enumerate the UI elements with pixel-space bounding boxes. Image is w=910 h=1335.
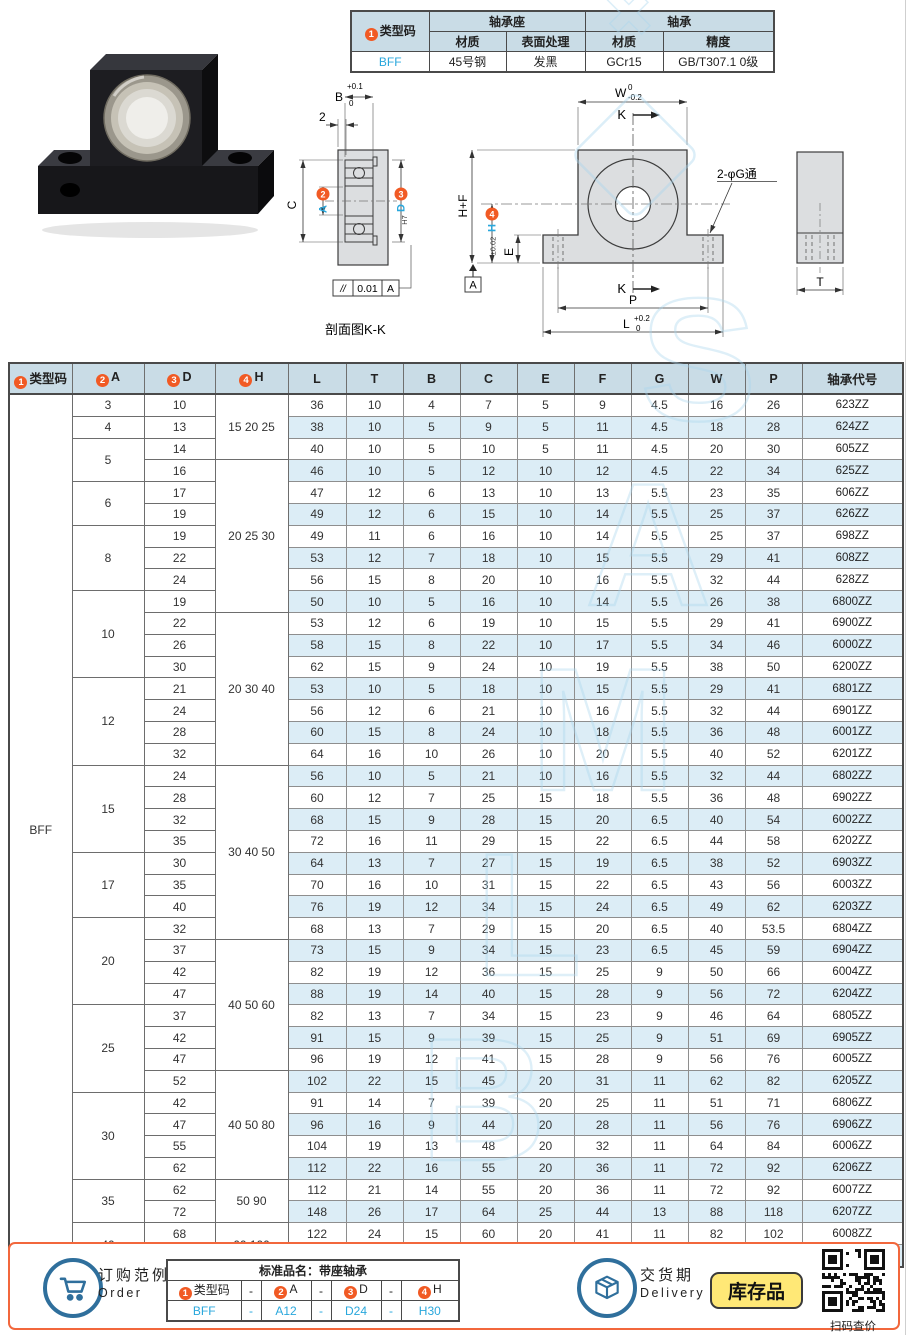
bearing-code-cell: 6005ZZ <box>802 1048 903 1070</box>
value-cell: 5.5 <box>631 743 688 765</box>
value-cell: 5 <box>403 765 460 787</box>
value-cell: 10 <box>517 634 574 656</box>
main-table-header-row: 1类型码2A3D4HLTBCEFGWP轴承代号 <box>9 363 903 394</box>
value-cell: 25 <box>574 961 631 983</box>
d-cell: 35 <box>144 830 215 852</box>
dim-w-tol-up: 0 <box>628 83 633 92</box>
value-cell: 12 <box>403 961 460 983</box>
bearing-code-cell: 608ZZ <box>802 547 903 569</box>
dim-w-label: W <box>615 86 627 100</box>
value-cell: 11 <box>574 416 631 438</box>
value-cell: 26 <box>460 743 517 765</box>
value-cell: 8 <box>403 634 460 656</box>
column-header: G <box>631 363 688 394</box>
value-cell: 62 <box>745 896 802 918</box>
bearing-code-cell: 606ZZ <box>802 482 903 504</box>
value-cell: 10 <box>517 700 574 722</box>
value-cell: 51 <box>688 1027 745 1049</box>
table-row: 24561582010165.53244628ZZ <box>9 569 903 591</box>
value-cell: 10 <box>517 591 574 613</box>
column-header: 3D <box>144 363 215 394</box>
column-header: 2A <box>72 363 144 394</box>
value-cell: 29 <box>688 547 745 569</box>
value-cell: 19 <box>460 612 517 634</box>
column-header: F <box>574 363 631 394</box>
value-cell: 32 <box>688 569 745 591</box>
value-cell: 43 <box>688 874 745 896</box>
dim-c-label: C <box>285 200 299 209</box>
badge-icon: 3 <box>167 374 180 387</box>
value-cell: 15 <box>346 656 403 678</box>
d-cell: 22 <box>144 612 215 634</box>
value-cell: 72 <box>688 1157 745 1179</box>
table-row: BFF31015 20 25361047594.51626623ZZ <box>9 394 903 416</box>
value-cell: 76 <box>288 896 346 918</box>
value-cell: 41 <box>460 1048 517 1070</box>
value-cell: 49 <box>688 896 745 918</box>
value-cell: 14 <box>574 503 631 525</box>
d-cell: 42 <box>144 961 215 983</box>
d-cell: 47 <box>144 1048 215 1070</box>
order-label-cn: 订购范例 <box>98 1267 170 1285</box>
value-cell: 28 <box>574 983 631 1005</box>
value-cell: 29 <box>688 678 745 700</box>
value-cell: 96 <box>288 1048 346 1070</box>
value-cell: 49 <box>288 503 346 525</box>
qr-code-icon <box>822 1249 885 1312</box>
spec-material-value: 45号钢 <box>429 52 506 73</box>
value-cell: 53.5 <box>745 918 802 940</box>
value-cell: 64 <box>745 1005 802 1027</box>
value-cell: 16 <box>574 569 631 591</box>
table-row: 28601582410185.536486001ZZ <box>9 721 903 743</box>
value-cell: 15 <box>346 569 403 591</box>
value-cell: 19 <box>574 656 631 678</box>
value-cell: 60 <box>288 787 346 809</box>
column-header: 1类型码 <box>9 363 72 394</box>
table-row: 32681592815206.540546002ZZ <box>9 809 903 831</box>
badge-2-icon: 2 <box>274 1286 287 1299</box>
value-cell: 13 <box>403 1136 460 1158</box>
d-cell: 35 <box>144 874 215 896</box>
bearing-code-cell: 6204ZZ <box>802 983 903 1005</box>
value-cell: 18 <box>460 678 517 700</box>
value-cell: 92 <box>745 1179 802 1201</box>
value-cell: 36 <box>574 1157 631 1179</box>
bearing-code-cell: 6805ZZ <box>802 1005 903 1027</box>
spec-subheader-precision: 精度 <box>663 32 774 52</box>
value-cell: 112 <box>288 1157 346 1179</box>
spec-subheader-surface: 表面处理 <box>506 32 585 52</box>
bearing-code-cell: 6802ZZ <box>802 765 903 787</box>
table-row: 152430 40 50561052110165.532446802ZZ <box>9 765 903 787</box>
value-cell: 10 <box>517 503 574 525</box>
value-cell: 15 <box>517 1005 574 1027</box>
dim-d-fit-label: H7 <box>400 215 409 225</box>
value-cell: 13 <box>346 1005 403 1027</box>
value-cell: 41 <box>745 547 802 569</box>
value-cell: 29 <box>460 830 517 852</box>
value-cell: 18 <box>574 787 631 809</box>
value-cell: 56 <box>745 874 802 896</box>
value-cell: 13 <box>574 482 631 504</box>
value-cell: 44 <box>574 1201 631 1223</box>
value-cell: 10 <box>403 874 460 896</box>
value-cell: 5.5 <box>631 569 688 591</box>
value-cell: 76 <box>745 1114 802 1136</box>
value-cell: 6 <box>403 612 460 634</box>
table-row: 617471261310135.52335606ZZ <box>9 482 903 504</box>
value-cell: 56 <box>288 569 346 591</box>
value-cell: 12 <box>574 460 631 482</box>
spec-table: 1类型码 轴承座 轴承 材质 表面处理 材质 精度 BFF 45号钢 发黑 GC… <box>350 10 775 73</box>
value-cell: 36 <box>460 961 517 983</box>
value-cell: 104 <box>288 1136 346 1158</box>
value-cell: 22 <box>574 874 631 896</box>
value-cell: 15 <box>346 809 403 831</box>
catalog-page: 1类型码 轴承座 轴承 材质 表面处理 材质 精度 BFF 45号钢 发黑 GC… <box>0 0 910 1335</box>
value-cell: 59 <box>745 939 802 961</box>
value-cell: 6.5 <box>631 939 688 961</box>
table-row: 30621592410195.538506200ZZ <box>9 656 903 678</box>
order-dash: - <box>381 1301 401 1322</box>
value-cell: 6 <box>403 482 460 504</box>
value-cell: 15 <box>460 503 517 525</box>
value-cell: 13 <box>631 1201 688 1223</box>
table-row: 2032681372915206.54053.56804ZZ <box>9 918 903 940</box>
value-cell: 24 <box>574 896 631 918</box>
bearing-code-cell: 6207ZZ <box>802 1201 903 1223</box>
value-cell: 5.5 <box>631 721 688 743</box>
value-cell: 72 <box>745 983 802 1005</box>
value-cell: 15 <box>517 787 574 809</box>
value-cell: 18 <box>688 416 745 438</box>
value-cell: 15 <box>517 961 574 983</box>
table-row: 357216112915226.544586202ZZ <box>9 830 903 852</box>
value-cell: 15 <box>517 874 574 896</box>
column-header: W <box>688 363 745 394</box>
value-cell: 10 <box>403 743 460 765</box>
value-cell: 64 <box>460 1201 517 1223</box>
dimension-table: 1类型码2A3D4HLTBCEFGWP轴承代号 BFF31015 20 2536… <box>8 362 904 1268</box>
value-cell: 48 <box>460 1136 517 1158</box>
value-cell: 40 <box>688 918 745 940</box>
value-cell: 47 <box>288 482 346 504</box>
column-header: 轴承代号 <box>802 363 903 394</box>
bearing-code-cell: 6201ZZ <box>802 743 903 765</box>
value-cell: 36 <box>288 394 346 416</box>
value-cell: 12 <box>346 482 403 504</box>
table-row: 1620 25 30461051210124.52234625ZZ <box>9 460 903 482</box>
table-row: 1019501051610145.526386800ZZ <box>9 591 903 613</box>
value-cell: 19 <box>574 852 631 874</box>
d-cell: 42 <box>144 1092 215 1114</box>
value-cell: 22 <box>346 1070 403 1092</box>
value-cell: 5 <box>403 591 460 613</box>
value-cell: 15 <box>574 547 631 569</box>
value-cell: 5 <box>517 438 574 460</box>
value-cell: 56 <box>688 1048 745 1070</box>
dim-d-label: D <box>396 204 408 212</box>
value-cell: 25 <box>688 503 745 525</box>
value-cell: 14 <box>403 1179 460 1201</box>
value-cell: 32 <box>574 1136 631 1158</box>
value-cell: 23 <box>574 1005 631 1027</box>
table-row: 357016103115226.543566003ZZ <box>9 874 903 896</box>
value-cell: 21 <box>346 1179 403 1201</box>
dim-b-tol-dn: 0 <box>349 99 354 108</box>
dim-b-tol-up: +0.1 <box>347 82 363 91</box>
value-cell: 10 <box>517 482 574 504</box>
value-cell: 12 <box>403 1048 460 1070</box>
bearing-code-cell: 624ZZ <box>802 416 903 438</box>
delivery-label-cn: 交货期 <box>640 1267 705 1285</box>
value-cell: 7 <box>403 1005 460 1027</box>
d-cell: 32 <box>144 809 215 831</box>
table-row: 5240 50 8010222154520311162826205ZZ <box>9 1070 903 1092</box>
table-row: 24561262110165.532446901ZZ <box>9 700 903 722</box>
bearing-code-cell: 6806ZZ <box>802 1092 903 1114</box>
value-cell: 15 <box>346 1027 403 1049</box>
order-label-en: Order <box>98 1285 170 1301</box>
dim-h-tol: ±0.02 <box>489 237 498 256</box>
value-cell: 26 <box>745 394 802 416</box>
page-edge-line <box>905 0 906 1335</box>
value-cell: 20 <box>460 569 517 591</box>
value-cell: 15 <box>517 1027 574 1049</box>
value-cell: 23 <box>688 482 745 504</box>
value-cell: 15 <box>517 918 574 940</box>
value-cell: 37 <box>745 503 802 525</box>
badge-icon: 4 <box>239 374 252 387</box>
value-cell: 13 <box>460 482 517 504</box>
value-cell: 82 <box>745 1070 802 1092</box>
value-cell: 41 <box>745 678 802 700</box>
bearing-code-cell: 6006ZZ <box>802 1136 903 1158</box>
spec-group-bearing: 轴承 <box>585 11 774 32</box>
value-cell: 25 <box>574 1092 631 1114</box>
value-cell: 15 <box>574 678 631 700</box>
spec-precision-value: GB/T307.1 0级 <box>663 52 774 73</box>
value-cell: 53 <box>288 612 346 634</box>
bearing-code-cell: 6000ZZ <box>802 634 903 656</box>
value-cell: 20 <box>517 1157 574 1179</box>
value-cell: 9 <box>403 656 460 678</box>
value-cell: 52 <box>745 743 802 765</box>
d-cell: 16 <box>144 460 215 482</box>
value-cell: 5.5 <box>631 612 688 634</box>
value-cell: 4 <box>403 394 460 416</box>
order-value-type: BFF <box>167 1301 241 1322</box>
spec-group-housing: 轴承座 <box>429 11 585 32</box>
value-cell: 56 <box>288 700 346 722</box>
value-cell: 40 <box>288 438 346 460</box>
value-cell: 18 <box>460 547 517 569</box>
column-header: E <box>517 363 574 394</box>
a-group-cell: 25 <box>72 1005 144 1092</box>
value-cell: 70 <box>288 874 346 896</box>
badge-4-icon: 4 <box>418 1286 431 1299</box>
value-cell: 5 <box>517 416 574 438</box>
value-cell: 10 <box>517 678 574 700</box>
value-cell: 16 <box>346 830 403 852</box>
d-cell: 19 <box>144 525 215 547</box>
a-group-cell: 12 <box>72 678 144 765</box>
order-header-a: 2A <box>261 1281 311 1301</box>
a-group-cell: 17 <box>72 852 144 917</box>
value-cell: 12 <box>460 460 517 482</box>
value-cell: 7 <box>403 918 460 940</box>
value-cell: 46 <box>288 460 346 482</box>
datum-a-label: A <box>469 280 477 292</box>
d-cell: 30 <box>144 656 215 678</box>
value-cell: 5.5 <box>631 656 688 678</box>
badge-1-icon: 1 <box>365 28 378 41</box>
table-row: 407619123415246.549626203ZZ <box>9 896 903 918</box>
flatness-ref: A <box>387 283 394 295</box>
value-cell: 34 <box>460 1005 517 1027</box>
value-cell: 9 <box>631 1048 688 1070</box>
value-cell: 14 <box>346 1092 403 1114</box>
bearing-code-cell: 6900ZZ <box>802 612 903 634</box>
spec-type-code-header: 1类型码 <box>351 11 429 52</box>
d-cell: 24 <box>144 765 215 787</box>
badge-4-number: 4 <box>489 210 494 220</box>
bearing-code-cell: 698ZZ <box>802 525 903 547</box>
value-cell: 36 <box>688 721 745 743</box>
value-cell: 25 <box>460 787 517 809</box>
value-cell: 8 <box>403 721 460 743</box>
value-cell: 76 <box>745 1048 802 1070</box>
column-header: T <box>346 363 403 394</box>
value-cell: 6.5 <box>631 809 688 831</box>
h-group-cell: 15 20 25 <box>215 394 288 460</box>
order-value-a: A12 <box>261 1301 311 1322</box>
value-cell: 13 <box>346 852 403 874</box>
table-row: 6211222165520361172926206ZZ <box>9 1157 903 1179</box>
value-cell: 19 <box>346 961 403 983</box>
d-cell: 72 <box>144 1201 215 1223</box>
value-cell: 28 <box>460 809 517 831</box>
value-cell: 15 <box>517 1048 574 1070</box>
table-row: 1221531051810155.529416801ZZ <box>9 678 903 700</box>
value-cell: 91 <box>288 1092 346 1114</box>
value-cell: 16 <box>346 743 403 765</box>
value-cell: 96 <box>288 1114 346 1136</box>
value-cell: 6.5 <box>631 918 688 940</box>
value-cell: 15 <box>346 721 403 743</box>
footer-bar: 订购范例 Order 标准品名：带座轴承 1类型码 - 2A - 3D - 4H… <box>8 1242 900 1330</box>
value-cell: 24 <box>460 721 517 743</box>
value-cell: 5.5 <box>631 700 688 722</box>
value-cell: 28 <box>574 1048 631 1070</box>
value-cell: 20 <box>517 1179 574 1201</box>
value-cell: 39 <box>460 1027 517 1049</box>
order-dash: - <box>311 1281 331 1301</box>
d-cell: 47 <box>144 1114 215 1136</box>
value-cell: 27 <box>460 852 517 874</box>
value-cell: 20 <box>517 1114 574 1136</box>
technical-drawing: B +0.1 0 2 C 2 A 3 D H7 // 0.01 <box>285 75 905 360</box>
d-cell: 47 <box>144 983 215 1005</box>
value-cell: 84 <box>745 1136 802 1158</box>
value-cell: 17 <box>403 1201 460 1223</box>
bearing-code-cell: 605ZZ <box>802 438 903 460</box>
value-cell: 5 <box>517 394 574 416</box>
value-cell: 6.5 <box>631 830 688 852</box>
d-cell: 37 <box>144 939 215 961</box>
bearing-code-cell: 625ZZ <box>802 460 903 482</box>
bearing-code-cell: 6003ZZ <box>802 874 903 896</box>
a-group-cell: 5 <box>72 438 144 482</box>
value-cell: 38 <box>745 591 802 613</box>
badge-3-number: 3 <box>398 190 403 200</box>
value-cell: 6.5 <box>631 896 688 918</box>
table-row: 72148261764254413881186207ZZ <box>9 1201 903 1223</box>
main-table-body: BFF31015 20 25361047594.51626623ZZ413381… <box>9 394 903 1267</box>
value-cell: 40 <box>688 809 745 831</box>
type-code-cell: BFF <box>9 394 72 1267</box>
value-cell: 62 <box>288 656 346 678</box>
product-photo <box>26 34 282 250</box>
value-cell: 6 <box>403 700 460 722</box>
order-value-h: H30 <box>401 1301 459 1322</box>
dim-l-tol-dn: 0 <box>636 324 641 333</box>
value-cell: 44 <box>688 830 745 852</box>
bearing-code-cell: 6002ZZ <box>802 809 903 831</box>
value-cell: 5.5 <box>631 503 688 525</box>
table-row: 326416102610205.540526201ZZ <box>9 743 903 765</box>
value-cell: 11 <box>631 1179 688 1201</box>
bearing-code-cell: 626ZZ <box>802 503 903 525</box>
order-label: 订购范例 Order <box>98 1267 170 1301</box>
value-cell: 10 <box>517 569 574 591</box>
order-dash: - <box>241 1281 261 1301</box>
value-cell: 16 <box>574 700 631 722</box>
value-cell: 31 <box>574 1070 631 1092</box>
bearing-code-cell: 6205ZZ <box>802 1070 903 1092</box>
value-cell: 25 <box>517 1201 574 1223</box>
h-group-cell: 20 25 30 <box>215 460 288 613</box>
d-cell: 13 <box>144 416 215 438</box>
d-cell: 19 <box>144 591 215 613</box>
value-cell: 16 <box>460 591 517 613</box>
dim-w-tol-dn: -0.2 <box>628 93 642 102</box>
d-cell: 40 <box>144 896 215 918</box>
bearing-code-cell: 623ZZ <box>802 394 903 416</box>
value-cell: 5.5 <box>631 591 688 613</box>
flatness-value: 0.01 <box>357 283 378 295</box>
value-cell: 48 <box>745 721 802 743</box>
value-cell: 15 <box>517 809 574 831</box>
value-cell: 26 <box>688 591 745 613</box>
value-cell: 9 <box>403 1027 460 1049</box>
value-cell: 10 <box>517 656 574 678</box>
value-cell: 34 <box>745 460 802 482</box>
value-cell: 12 <box>346 700 403 722</box>
value-cell: 9 <box>574 394 631 416</box>
value-cell: 10 <box>460 438 517 460</box>
value-cell: 23 <box>574 939 631 961</box>
value-cell: 5 <box>403 678 460 700</box>
spec-bearing-material-value: GCr15 <box>585 52 663 73</box>
stock-badge: 库存品 <box>710 1272 803 1309</box>
d-cell: 42 <box>144 1027 215 1049</box>
value-cell: 5 <box>403 438 460 460</box>
value-cell: 15 <box>346 634 403 656</box>
table-row: 51440105105114.52030605ZZ <box>9 438 903 460</box>
order-dash: - <box>311 1301 331 1322</box>
